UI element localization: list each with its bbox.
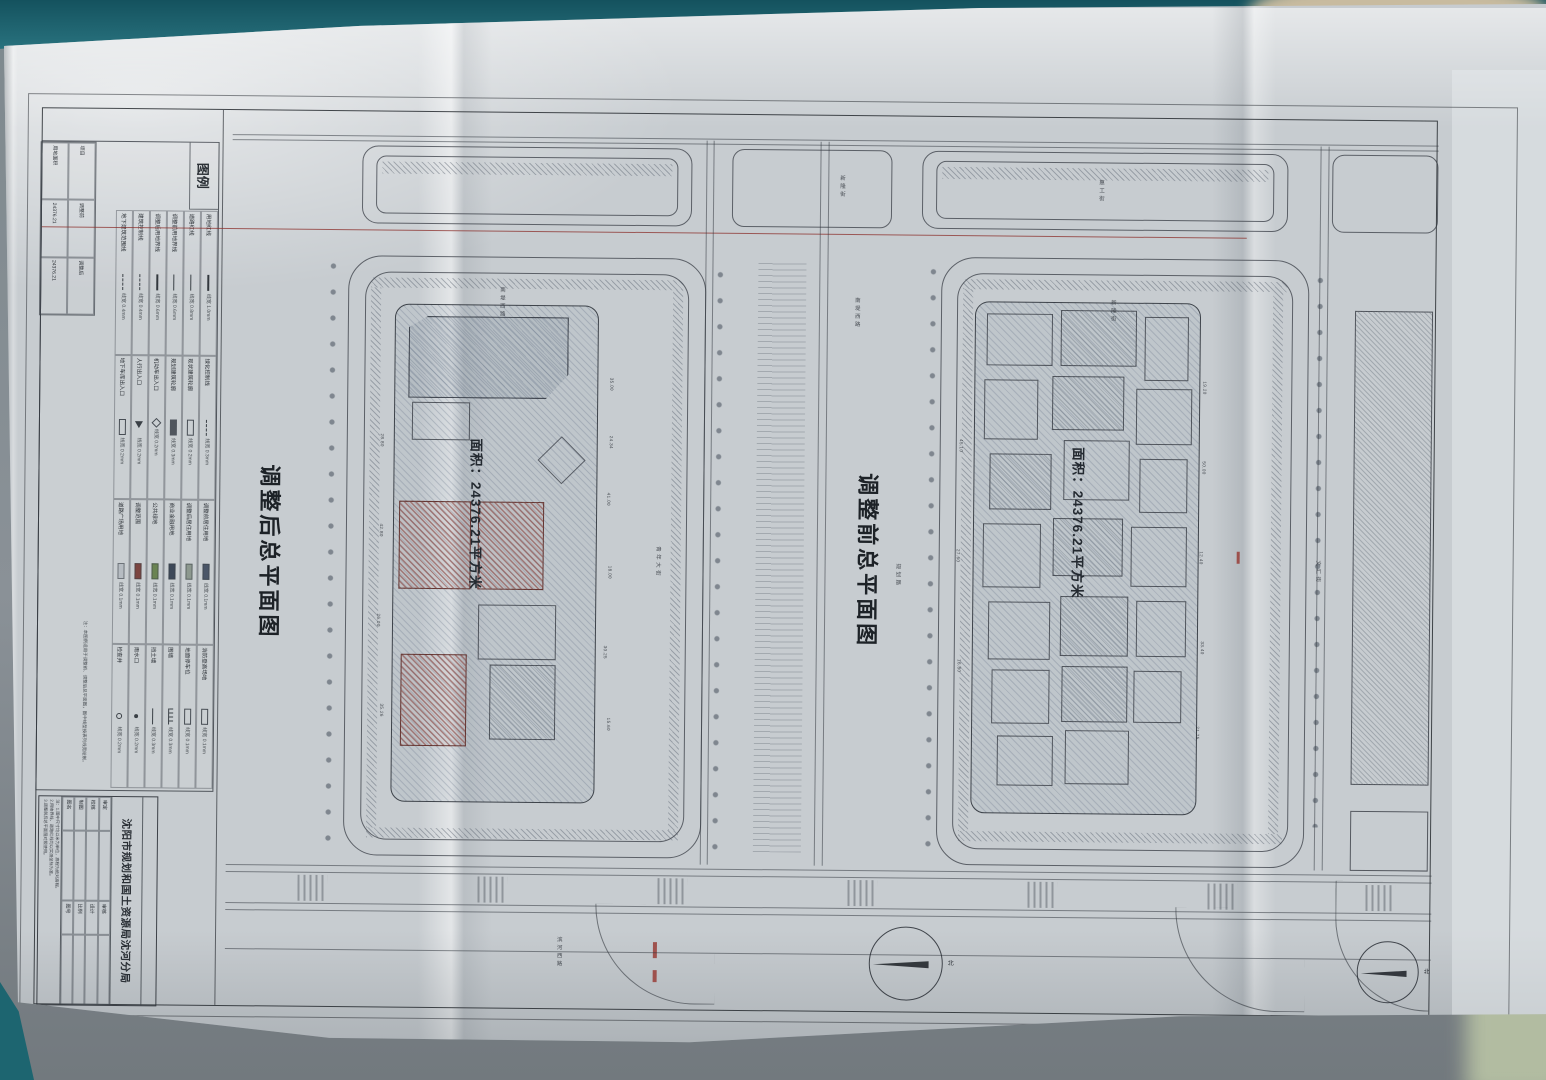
legend-symbol-line-bold	[205, 275, 213, 291]
title-block-fields: 审定审核校核设计制图比例图名图号	[60, 796, 111, 1004]
dimension-label: 19.20	[1202, 381, 1207, 394]
legend-symbol-rect-dark	[170, 419, 177, 435]
legend-symbol-arrow	[135, 419, 143, 435]
dimension-label: 35.26	[379, 703, 384, 716]
dimension-label: 30.25	[603, 646, 608, 659]
building-footprint	[1130, 527, 1187, 588]
street-label: 惠工街	[1099, 178, 1107, 202]
legend-symbol-rect	[187, 419, 194, 435]
legend-entry-name: 消防登高场地	[201, 647, 210, 705]
legend-entry: 挡土墙线宽 0.3mm	[144, 644, 162, 789]
legend-subtable-cell: 24376.21	[40, 257, 68, 315]
tb-label: 校核	[87, 797, 100, 831]
legend-symbol-rect	[119, 418, 126, 434]
legend-entry-spec: 线宽 0.3mm	[170, 438, 177, 465]
east-parcel-hatched	[1351, 311, 1434, 786]
building-footprint	[1065, 730, 1130, 785]
building-footprint	[984, 379, 1039, 440]
legend-symbol-line	[171, 274, 179, 290]
legend-symbol-line	[188, 275, 196, 291]
legend-entry-spec: 线宽 0.1mm	[185, 583, 192, 610]
street-label: 滨河西路	[557, 935, 565, 967]
north-arrow: 北	[1356, 941, 1419, 1004]
dimension-label: 33.40	[1200, 641, 1205, 654]
dimension-label: 45.10	[959, 439, 964, 452]
north-label: 北	[1424, 967, 1430, 976]
tb-value	[98, 831, 111, 901]
legend-entry-name: 调整后用地界线	[154, 213, 163, 271]
legend-symbol-line-bold	[154, 274, 162, 290]
legend-entry-name: 地下车库出入口	[119, 357, 128, 415]
tb-value	[61, 830, 74, 900]
legend-entry: 规划建筑轮廓线宽 0.3mm	[164, 355, 182, 500]
tb-label: 图号	[61, 900, 74, 934]
legend-entry-spec: 线宽 0.2mm	[133, 727, 140, 754]
tb-value	[97, 935, 110, 1005]
legend-entry-spec: 线宽 0.1mm	[134, 582, 141, 609]
legend-entry-spec: 线宽 0.1mm	[202, 583, 209, 610]
building-footprint	[982, 523, 1041, 588]
tb-label: 制图	[74, 797, 87, 831]
legend-symbol-dash	[120, 274, 128, 290]
legend-entry-name: 调整前居住用地	[202, 503, 211, 561]
legend-entry-spec: 线宽 0.2mm	[116, 726, 123, 753]
legend-entry: 调整前居住用地线宽 0.1mm	[197, 500, 215, 645]
legend-entry-name: 人行出入口	[136, 358, 145, 416]
road-curve	[1174, 907, 1305, 1012]
street-label: 文汇街	[1314, 560, 1322, 584]
crosswalk-hatch	[1027, 882, 1057, 908]
legend-subtable-cell: 项目	[68, 142, 96, 200]
legend-entry-name: 机动车出入口	[153, 358, 162, 416]
legend-symbol-swatch	[202, 564, 209, 580]
legend-entry-spec: 线宽 0.4mm	[137, 293, 144, 320]
crosswalk-hatch	[847, 880, 877, 906]
tb-label: 比例	[73, 901, 86, 935]
legend-entry-name: 地下建筑范围线	[120, 213, 129, 271]
dimension-label: 28.80	[380, 433, 385, 446]
legend-symbol-dash	[203, 419, 211, 435]
building-footprint	[1136, 389, 1193, 446]
north-arrow: 北	[868, 926, 943, 1001]
legend-entry: 公共绿地线宽 0.1mm	[146, 499, 164, 644]
road-curve	[594, 904, 715, 1005]
crosswalk-hatch	[297, 875, 327, 901]
legend-entry-name: 公共绿地	[151, 502, 160, 560]
legend-entries: 用地红线线宽 1.0mm道路红线线宽 0.8mm调整前用地界线线宽 0.6mm调…	[110, 210, 218, 789]
legend-entry: 地下车库出入口线宽 0.2mm	[113, 354, 131, 499]
legend-subtable-cell: 用地面积	[41, 142, 69, 200]
adjusted-building-red	[398, 501, 471, 590]
legend-entry-spec: 线宽 0.1mm	[117, 582, 124, 609]
paper-sheet: 图例 用地红线线宽 1.0mm道路红线线宽 0.8mm调整前用地界线线宽 0.6…	[0, 0, 1546, 1080]
dimension-label: 16.80	[957, 659, 962, 672]
legend-entry-spec: 线宽 0.4mm	[120, 293, 127, 320]
street-label: 新隆街	[1111, 299, 1119, 323]
legend-entry-spec: 线宽 0.1mm	[201, 727, 208, 754]
legend-symbol-swatch	[185, 564, 192, 580]
legend-entry-name: 围墙	[167, 647, 176, 705]
building-footprint	[996, 735, 1052, 786]
dimension-label: 15.60	[606, 718, 611, 731]
dimension-label: 50.00	[1201, 461, 1206, 474]
north-label: 北	[948, 958, 954, 967]
legend-entry: 调整后居住用地线宽 0.1mm	[180, 500, 198, 645]
legend-symbol-circle	[117, 712, 123, 718]
east-parcel-outline	[1350, 811, 1429, 872]
legend-entry: 调整后用地界线线宽 0.6mm	[149, 210, 167, 355]
legend-entry: 雨水口线宽 0.2mm	[127, 644, 145, 789]
legend-entry: 围墙线宽 0.3mm	[161, 644, 179, 789]
building-footprint	[989, 453, 1052, 510]
north-arrow-needle	[1361, 970, 1407, 977]
legend-entry-spec: 线宽 0.3mm	[204, 438, 211, 465]
legend-entry-spec: 线宽 0.1mm	[168, 582, 175, 609]
building-footprint	[1061, 310, 1138, 367]
legend-subtable-cell: 24376.21	[41, 200, 69, 258]
legend-entry-spec: 线宽 0.1mm	[184, 727, 191, 754]
tree-row	[323, 253, 339, 853]
legend-entry-name: 用地红线	[205, 214, 214, 272]
dimension-label: 18.00	[607, 566, 612, 579]
legend-symbol-rect	[201, 708, 208, 724]
legend-entry-spec: 线宽 0.6mm	[171, 293, 178, 320]
building-footprint	[1052, 376, 1125, 431]
legend-entry-name: 道路红线	[188, 214, 197, 272]
street-label: 新隆街	[840, 174, 848, 198]
legend-symbol-dot	[135, 714, 139, 718]
legend-symbol-swatch	[117, 563, 124, 579]
tb-value	[85, 935, 98, 1005]
street-label: 南堤西路	[500, 286, 508, 318]
building-footprint	[1136, 601, 1187, 657]
legend-entry-name: 绿化控制线	[203, 358, 212, 416]
tb-label: 审核	[98, 901, 111, 935]
building-footprint	[987, 313, 1053, 366]
dimension-label: 35.00	[609, 378, 614, 391]
dimension-label: 26.00	[376, 613, 381, 626]
legend-entry-spec: 线宽 0.1mm	[151, 582, 158, 609]
legend-entry-name: 检查井	[116, 646, 125, 704]
legend-entry-name: 现状建筑轮廓	[187, 358, 196, 416]
panel1-area-label: 面积：24376.21平方米	[465, 438, 487, 680]
dimension-label: 27.60	[956, 549, 961, 562]
street-label: 青年大街	[654, 546, 662, 578]
legend-entry: 绿化控制线线宽 0.3mm	[198, 355, 216, 500]
legend-symbol-swatch	[168, 563, 175, 579]
crosswalk-hatch	[1207, 883, 1237, 909]
legend-entry: 地下建筑范围线线宽 0.4mm	[115, 210, 133, 355]
drawing-frame: 图例 用地红线线宽 1.0mm道路红线线宽 0.8mm调整前用地界线线宽 0.6…	[33, 107, 1438, 1017]
corridor-line	[814, 142, 822, 866]
adjusted-building-red	[400, 654, 467, 747]
legend-subtable: 项目调整前调整后用地面积24376.2124376.21	[39, 141, 97, 316]
legend-entry: 人行出入口线宽 0.2mm	[130, 355, 148, 500]
title-adjusted-plan: 调整后总平面图	[254, 464, 288, 664]
building-footprint	[1139, 459, 1188, 513]
legend-entry-spec: 线宽 0.2mm	[153, 429, 160, 456]
existing-building	[408, 316, 569, 400]
building-outline	[478, 604, 557, 660]
legend-entry: 检查井线宽 0.2mm	[110, 643, 128, 788]
legend-symbol-dash	[137, 274, 145, 290]
legend-entry: 机动车出入口线宽 0.2mm	[147, 355, 165, 500]
legend-entry-name: 规划建筑轮廓	[170, 358, 179, 416]
legend-entry: 建筑控制线线宽 0.4mm	[132, 210, 150, 355]
crosswalk-hatch	[477, 876, 507, 902]
legend-entry-spec: 线宽 0.2mm	[136, 438, 143, 465]
legend-subtable-cell: 调整前	[68, 200, 96, 258]
title-original-plan: 调整前总平面图	[852, 473, 886, 673]
tb-label: 设计	[86, 901, 99, 935]
dimension-label: 12.40	[1199, 551, 1204, 564]
title-block-top-strip	[140, 797, 157, 1005]
tb-value	[74, 831, 87, 901]
legend-symbol-diamond	[151, 417, 161, 427]
north-parcel	[1332, 155, 1439, 234]
building-footprint	[991, 669, 1050, 724]
legend-entry: 消防登高场地线宽 0.1mm	[195, 644, 213, 789]
legend-entry-name: 地面停车位	[184, 647, 193, 705]
tb-label: 图名	[62, 796, 75, 830]
legend-entry: 用地红线线宽 1.0mm	[200, 211, 218, 356]
legend-entry: 地面停车位线宽 0.1mm	[178, 644, 196, 789]
median-hatch	[753, 262, 807, 852]
agency-name: 沈阳市规划和国土资源局沈河分局	[109, 797, 142, 1005]
legend-entry-name: 雨水口	[133, 647, 142, 705]
legend-entry-name: 道路广场用地	[117, 502, 126, 560]
legend-entry-spec: 线宽 0.3mm	[150, 727, 157, 754]
legend-entry-name: 挡土墙	[150, 647, 159, 705]
panel2-area-label: 面积：24376.21平方米	[1067, 447, 1089, 689]
legend-header: 图例	[189, 143, 219, 210]
title-block: 沈阳市规划和国土资源局沈河分局 审定审核校核设计制图比例图名图号 注：1.图中尺…	[36, 795, 158, 1006]
legend-entry-name: 调整后居住用地	[185, 503, 194, 561]
legend-entry: 调整范围线宽 0.1mm	[129, 499, 147, 644]
street-label: 规划路	[894, 563, 902, 587]
legend-entry-name: 建筑控制线	[137, 213, 146, 271]
building-footprint	[988, 601, 1051, 660]
legend-symbol-swatch	[134, 563, 141, 579]
legend-symbol-ticks	[168, 708, 173, 724]
adjusted-building-red	[477, 501, 544, 590]
dimension-label: 24.34	[609, 436, 614, 449]
legend-entry-spec: 线宽 0.8mm	[188, 294, 195, 321]
building-footprint	[1144, 317, 1189, 381]
photo-of-site-plan-drawing: 图例 用地红线线宽 1.0mm道路红线线宽 0.8mm调整前用地界线线宽 0.6…	[0, 0, 1546, 1080]
tb-value	[60, 934, 73, 1004]
legend-symbol-rect	[184, 708, 191, 724]
legend-entry-name: 商业金融用地	[168, 502, 177, 560]
legend-entry-spec: 线宽 0.6mm	[154, 293, 161, 320]
north-parcel	[732, 149, 893, 229]
tb-label: 审定	[99, 797, 112, 831]
legend-entry: 调整前用地界线线宽 0.6mm	[166, 210, 184, 355]
legend-entry: 道路广场用地线宽 0.1mm	[112, 499, 130, 644]
dimension-label: 21.75	[1195, 726, 1200, 739]
legend-entry: 商业金融用地线宽 0.1mm	[163, 499, 181, 644]
tb-value	[73, 935, 86, 1005]
title-block-notes: 注：1.图中尺寸均以米为单位，高程为绝对高程。2.用地界线、道路红线均以实测坐标…	[37, 796, 62, 1004]
dimension-label: 41.00	[606, 493, 611, 506]
legend-symbol-swatch	[151, 563, 158, 579]
legend-entry-spec: 线宽 1.0mm	[205, 294, 212, 321]
crosswalk-hatch	[657, 878, 687, 904]
drawing-sheet: 图例 用地红线线宽 1.0mm道路红线线宽 0.8mm调整前用地界线线宽 0.6…	[0, 0, 1546, 1080]
legend-entry-spec: 线宽 0.2mm	[119, 437, 126, 464]
legend-entry: 现状建筑轮廓线宽 0.2mm	[181, 355, 199, 500]
building-outline	[412, 402, 470, 441]
legend-entry-spec: 线宽 0.3mm	[167, 727, 174, 754]
legend-entry-spec: 线宽 0.2mm	[187, 438, 194, 465]
legend-subtable-cell: 调整后	[67, 257, 95, 315]
north-arrow-needle	[873, 960, 929, 969]
legend-entry-name: 调整范围	[134, 502, 143, 560]
building-footprint	[1133, 671, 1181, 723]
dimension-label: 42.80	[379, 523, 384, 536]
legend-entry-name: 调整前用地界线	[171, 213, 180, 271]
building-hatched	[489, 665, 556, 741]
legend-symbol-line	[150, 708, 158, 724]
street-label: 南堤西路	[855, 296, 863, 328]
legend-table: 图例 用地红线线宽 1.0mm道路红线线宽 0.8mm调整前用地界线线宽 0.6…	[35, 140, 219, 792]
corridor-line	[822, 142, 830, 866]
tb-value	[86, 831, 99, 901]
legend-entry: 道路红线线宽 0.8mm	[183, 211, 201, 356]
